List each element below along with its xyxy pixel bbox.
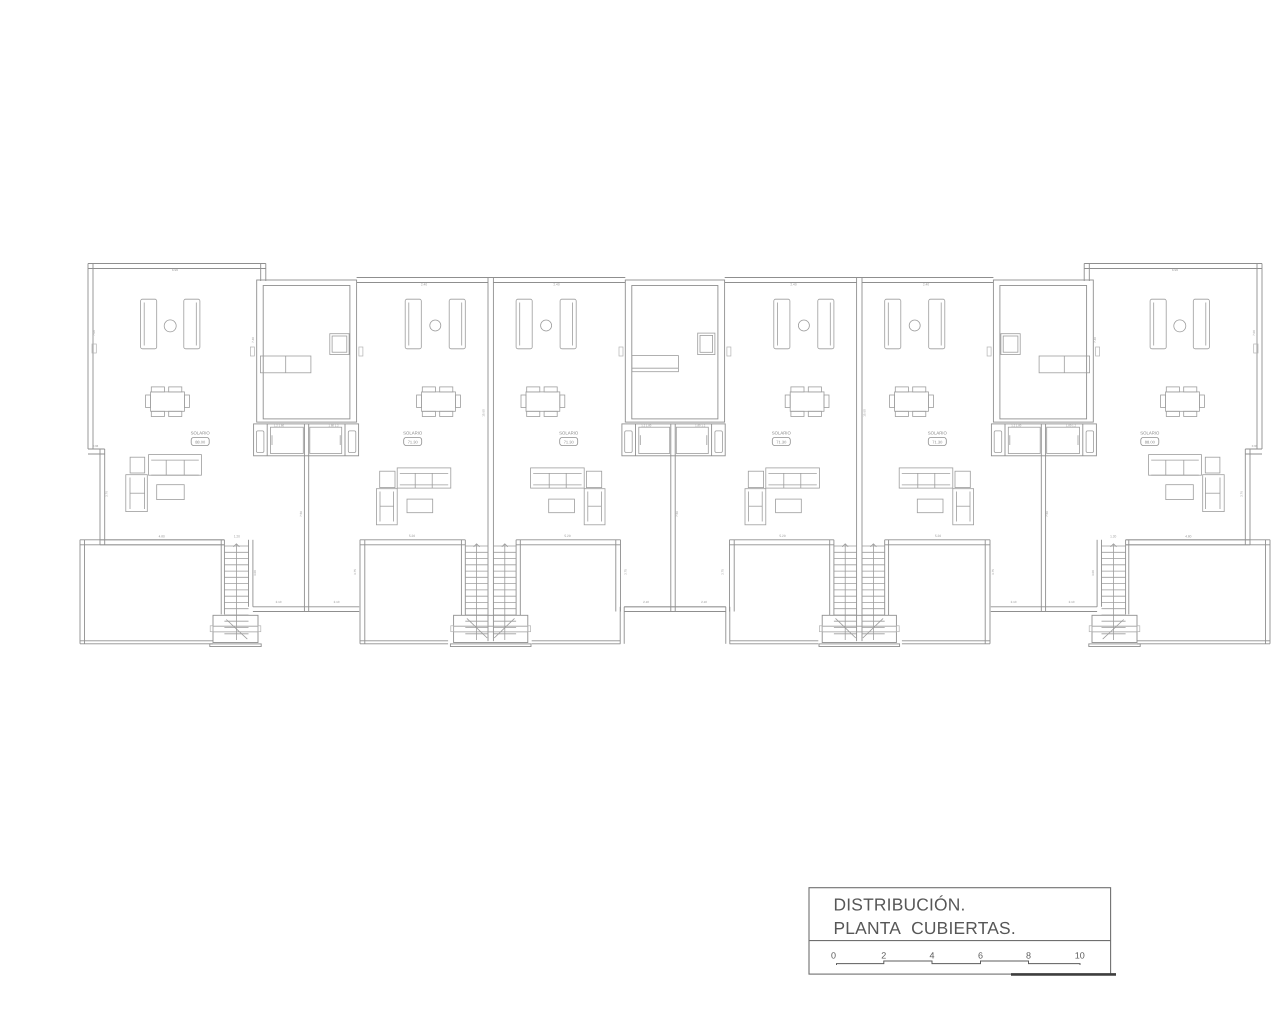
svg-text:2.10: 2.10 <box>334 600 340 604</box>
svg-text:10: 10 <box>1075 951 1085 961</box>
svg-text:3.75: 3.75 <box>353 569 357 575</box>
svg-text:5.20: 5.20 <box>779 534 785 538</box>
svg-text:4.80: 4.80 <box>1185 535 1191 539</box>
svg-text:1.2 1.80: 1.2 1.80 <box>1011 424 1022 428</box>
svg-text:6: 6 <box>978 951 983 961</box>
svg-text:2.40: 2.40 <box>923 283 929 287</box>
svg-text:3.00: 3.00 <box>1091 570 1095 576</box>
svg-text:71.30: 71.30 <box>408 439 419 444</box>
svg-text:3.75: 3.75 <box>721 569 725 575</box>
svg-text:71.30: 71.30 <box>776 439 787 444</box>
svg-text:71.30: 71.30 <box>564 439 575 444</box>
svg-text:5.20: 5.20 <box>564 534 570 538</box>
svg-text:SOLARIO: SOLARIO <box>403 431 423 436</box>
svg-text:SOLARIO: SOLARIO <box>559 431 579 436</box>
svg-text:2.10: 2.10 <box>276 600 282 604</box>
svg-text:2: 2 <box>881 951 886 961</box>
svg-text:6.90: 6.90 <box>172 268 178 272</box>
svg-text:1.20: 1.20 <box>234 535 240 539</box>
svg-text:2.10: 2.10 <box>1069 600 1075 604</box>
svg-text:1.80 1.2: 1.80 1.2 <box>1066 424 1077 428</box>
svg-text:SOLARIO: SOLARIO <box>191 431 211 436</box>
svg-text:1.2 1.80: 1.2 1.80 <box>641 424 652 428</box>
svg-text:3.00: 3.00 <box>253 570 257 576</box>
svg-text:1.2 1.80: 1.2 1.80 <box>274 424 285 428</box>
svg-text:88.00: 88.00 <box>195 439 206 444</box>
svg-text:0.08: 0.08 <box>93 444 99 448</box>
svg-text:6.90: 6.90 <box>1172 268 1178 272</box>
svg-text:PLANTA CUBIERTAS.: PLANTA CUBIERTAS. <box>834 918 1016 938</box>
svg-text:4.80: 4.80 <box>159 535 165 539</box>
svg-text:5.20: 5.20 <box>935 534 941 538</box>
svg-text:2.10: 2.10 <box>643 600 649 604</box>
svg-text:2.40: 2.40 <box>553 283 559 287</box>
svg-text:DISTRIBUCIÓN.: DISTRIBUCIÓN. <box>834 895 966 915</box>
svg-text:7.40: 7.40 <box>251 337 255 343</box>
svg-text:2.40: 2.40 <box>790 283 796 287</box>
svg-text:3.75: 3.75 <box>624 569 628 575</box>
svg-text:15.60: 15.60 <box>863 409 867 417</box>
svg-text:0: 0 <box>831 951 836 961</box>
svg-text:1.80 1.2: 1.80 1.2 <box>329 424 340 428</box>
svg-text:3.76: 3.76 <box>105 491 109 497</box>
svg-text:3.76: 3.76 <box>1240 491 1244 497</box>
svg-text:15.60: 15.60 <box>482 409 486 417</box>
svg-text:2.40: 2.40 <box>421 283 427 287</box>
svg-text:2.10: 2.10 <box>1011 600 1017 604</box>
svg-text:SOLARIO: SOLARIO <box>772 431 792 436</box>
svg-text:71.30: 71.30 <box>932 439 943 444</box>
svg-text:1.80 1.2: 1.80 1.2 <box>695 424 706 428</box>
svg-text:SOLARIO: SOLARIO <box>928 431 948 436</box>
svg-text:3.75: 3.75 <box>991 569 995 575</box>
svg-text:0.08: 0.08 <box>1252 444 1258 448</box>
svg-text:88.00: 88.00 <box>1145 439 1156 444</box>
svg-text:2.10: 2.10 <box>701 600 707 604</box>
svg-text:7.00: 7.00 <box>92 330 96 336</box>
svg-text:SOLARIO: SOLARIO <box>1140 431 1160 436</box>
svg-text:7.00: 7.00 <box>1252 330 1256 336</box>
svg-text:4: 4 <box>929 951 934 961</box>
svg-text:7.50: 7.50 <box>675 511 679 517</box>
svg-text:5.20: 5.20 <box>409 534 415 538</box>
svg-text:7.50: 7.50 <box>299 511 303 517</box>
svg-text:1.20: 1.20 <box>1110 535 1116 539</box>
svg-text:8: 8 <box>1026 951 1031 961</box>
svg-text:7.50: 7.50 <box>1045 511 1049 517</box>
